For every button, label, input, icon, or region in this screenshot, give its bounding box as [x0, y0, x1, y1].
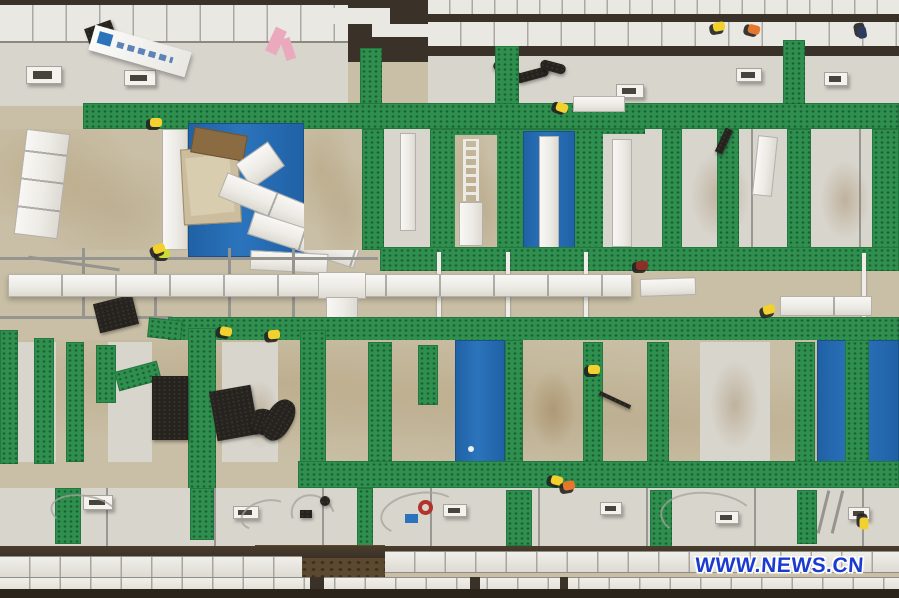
- green-walkway-strip: [647, 342, 669, 462]
- wall-tile-row: [0, 556, 302, 578]
- green-walkway-strip: [506, 490, 532, 546]
- worker: [588, 365, 600, 374]
- debris: [300, 510, 312, 518]
- worker: [857, 26, 868, 39]
- vent-hood: [124, 70, 156, 86]
- vent-hood: [824, 72, 848, 86]
- green-walkway-strip: [787, 129, 811, 250]
- white-dot: [468, 446, 474, 452]
- black-mat: [93, 295, 139, 334]
- ladder: [463, 139, 479, 201]
- green-walkway-strip: [300, 330, 326, 462]
- stain: [530, 370, 576, 450]
- green-walkway-strip: [795, 342, 815, 462]
- green-walkway-strip: [495, 46, 519, 104]
- red-coil: [418, 500, 433, 515]
- green-walkway-strip: [362, 129, 384, 250]
- duct-segment: [250, 250, 329, 274]
- scaffold-rail: [0, 316, 172, 319]
- ground-gap-bottom: [0, 589, 899, 598]
- white-beam: [612, 139, 632, 247]
- stain: [710, 360, 760, 450]
- green-walkway-strip: [872, 129, 899, 250]
- green-walkway-strip: [34, 338, 54, 464]
- duct-tee-flare: [318, 272, 366, 299]
- stain: [820, 160, 870, 240]
- vent-hood: [736, 68, 762, 82]
- green-walkway-strip: [583, 342, 603, 462]
- worker: [268, 329, 281, 339]
- white-beam: [539, 136, 559, 248]
- white-beam: [400, 133, 416, 231]
- green-walkway-strip: [190, 488, 214, 540]
- worker: [150, 118, 162, 127]
- white-box: [780, 296, 872, 316]
- debris: [320, 496, 330, 506]
- worker: [219, 326, 232, 337]
- wall-panel-row-top-left: [0, 5, 348, 43]
- banner-logo: [97, 31, 114, 46]
- black-mat: [152, 376, 188, 440]
- vent-hood: [26, 66, 62, 84]
- white-box: [573, 96, 625, 112]
- wall-panel-step: [316, 8, 390, 24]
- aerial-photo-construction-site: WWW.NEWS.CN: [0, 0, 899, 598]
- green-walkway-strip: [96, 345, 116, 403]
- green-walkway-strip: [797, 490, 817, 544]
- green-walkway-strip: [360, 48, 382, 104]
- green-walkway-strip: [662, 129, 682, 250]
- white-beam: [459, 202, 483, 246]
- green-walkway-strip: [505, 340, 523, 462]
- vent-hood: [600, 502, 622, 515]
- green-walkway-band: [298, 461, 899, 488]
- green-walkway-strip: [368, 342, 392, 462]
- banner-text-marks: [116, 42, 173, 64]
- green-walkway-strip: [0, 330, 18, 464]
- wall-panel-step: [372, 24, 434, 37]
- green-walkway-strip: [357, 488, 373, 552]
- green-walkway-strip: [418, 345, 438, 405]
- roof-panel-column: [304, 129, 362, 250]
- wall-tile-row-top-right: [428, 0, 899, 14]
- worker: [762, 304, 776, 316]
- green-walkway-strip: [66, 342, 84, 462]
- green-walkway-strip: [845, 340, 869, 462]
- green-walkway-strip: [783, 40, 805, 104]
- white-box: [640, 277, 697, 297]
- worker: [860, 518, 869, 530]
- worker: [636, 261, 648, 270]
- blue-door-panel: [455, 340, 505, 462]
- blue-toolbox: [405, 514, 418, 523]
- green-walkway-scrap: [147, 317, 183, 340]
- news-watermark: WWW.NEWS.CN: [694, 554, 864, 578]
- wall-panel-row-top-right: [428, 22, 899, 46]
